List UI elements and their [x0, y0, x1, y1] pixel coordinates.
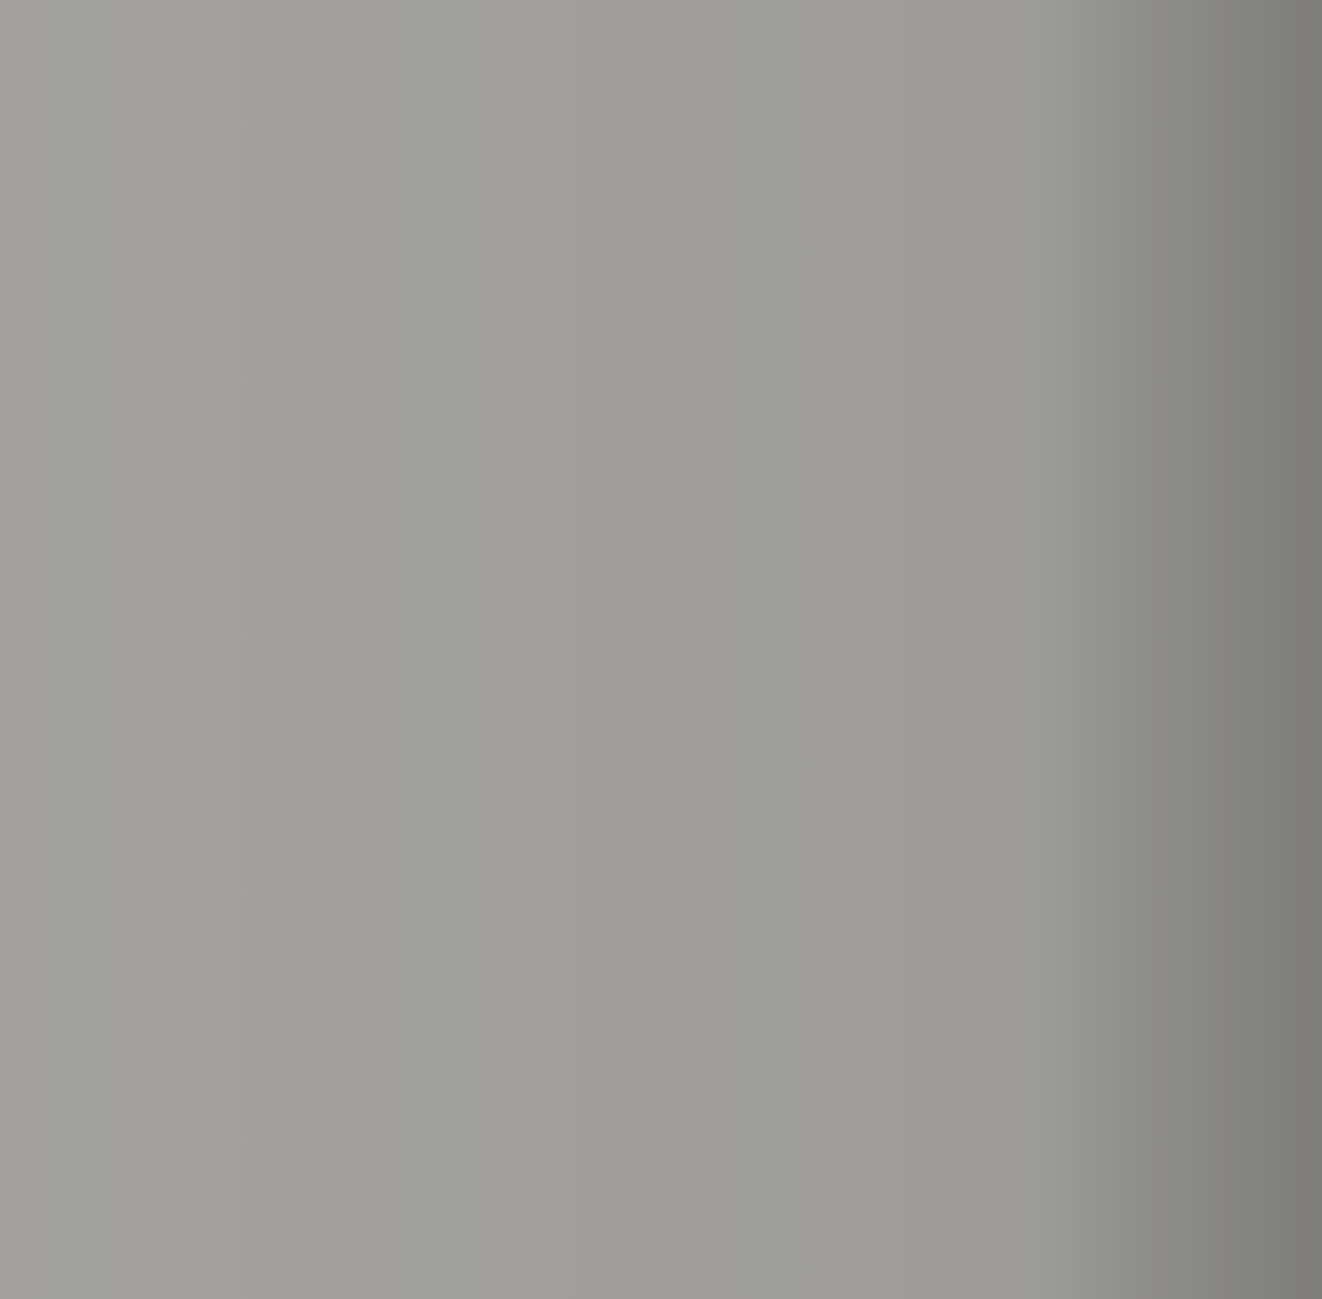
photo-background [0, 0, 1322, 1299]
photographed-blueprint: 1 2 3 4 5 6 7 N /s s n/s 0Hz - kg [0, 0, 1322, 1299]
